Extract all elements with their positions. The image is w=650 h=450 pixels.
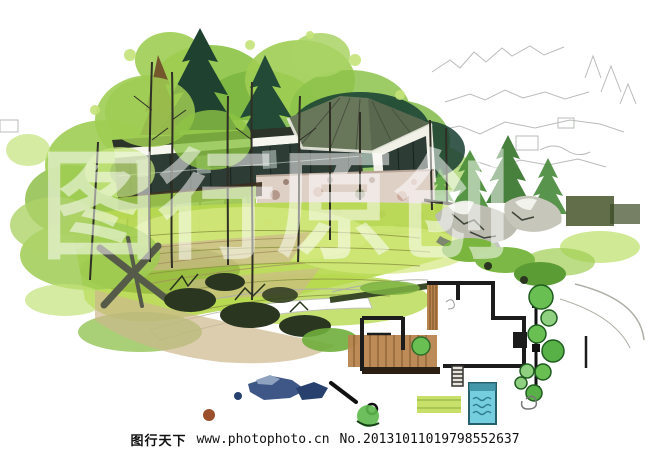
site-url: www.photophoto.cn (196, 432, 329, 447)
stock-image-page: 图行原创 图行天下 www.photophoto.cn No.201310110… (0, 0, 650, 450)
credit-bar: 图行天下 www.photophoto.cn No.20131011019798… (0, 428, 650, 450)
plan-lawn-strip (417, 396, 461, 413)
stairs (452, 366, 463, 386)
swimming-pool (469, 383, 496, 424)
red-rock (203, 409, 215, 421)
landscape-rendering (0, 0, 650, 428)
site-name: 图行天下 (130, 430, 186, 449)
image-serial: No.20131011019798552637 (340, 432, 520, 447)
